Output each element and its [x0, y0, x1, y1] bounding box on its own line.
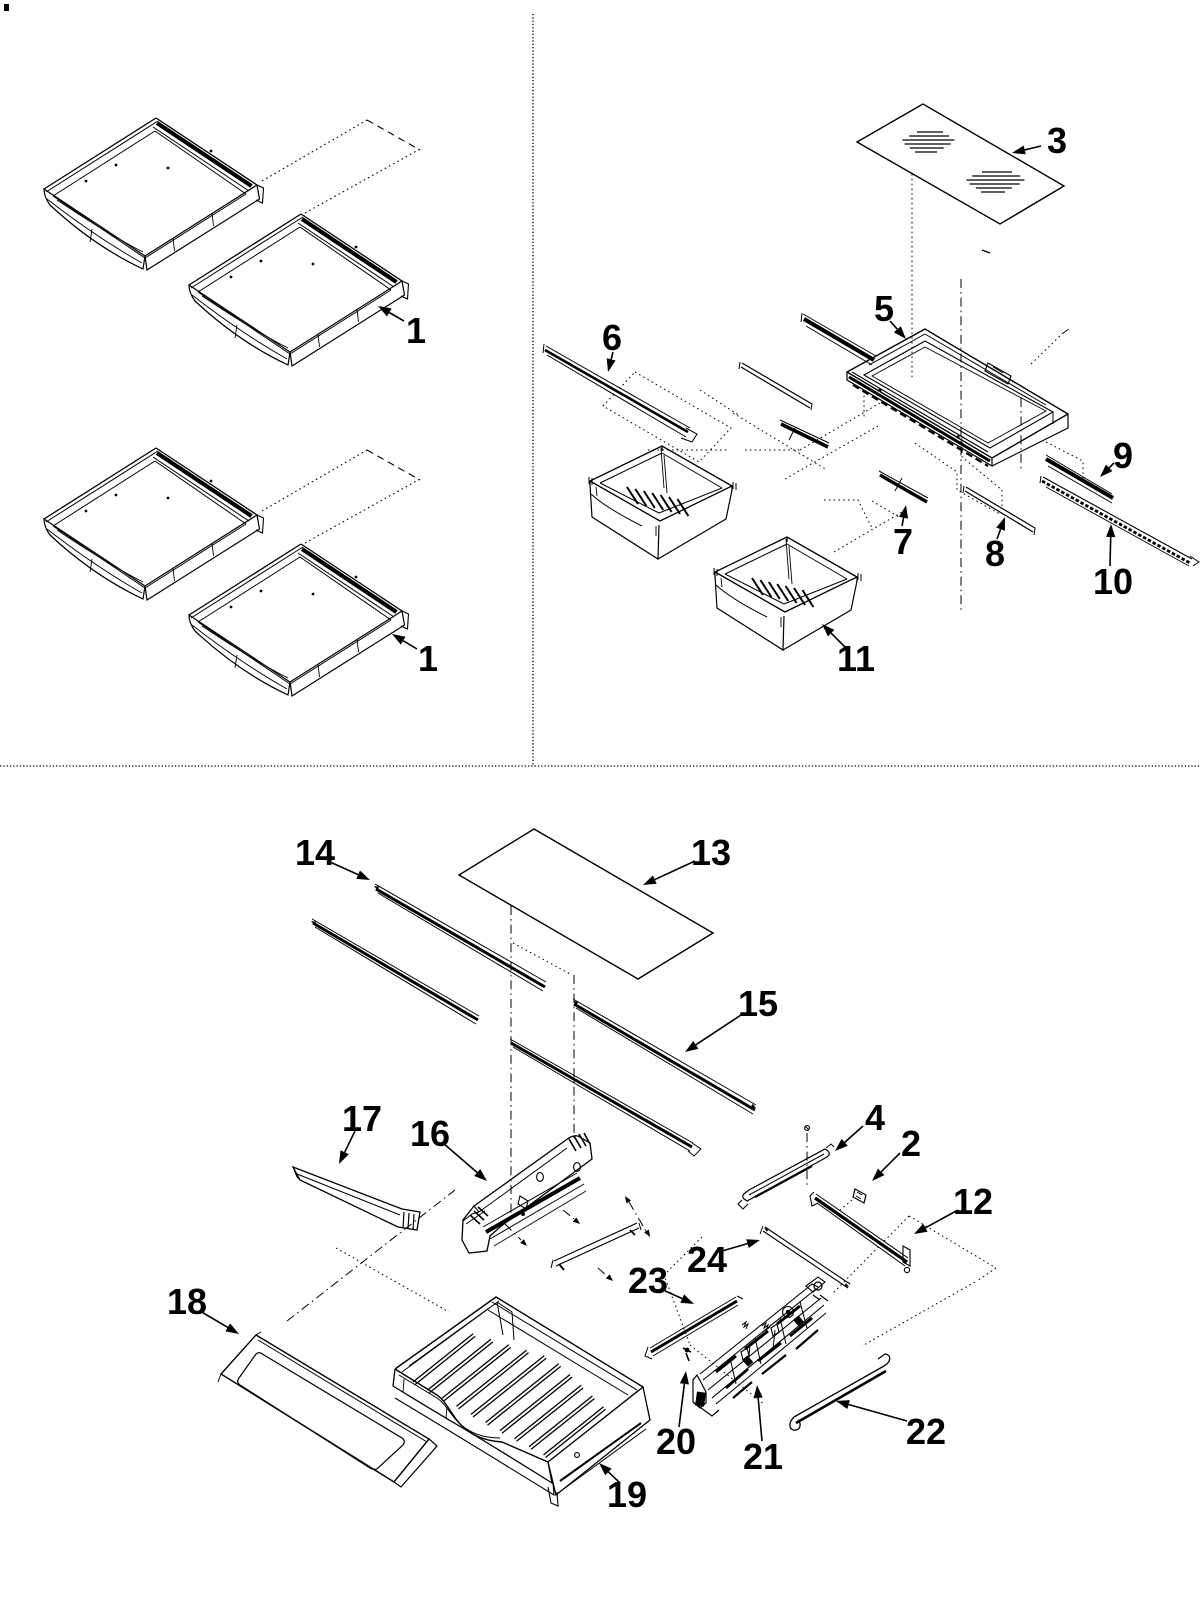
svg-text:19: 19 [607, 1474, 647, 1515]
svg-text:11: 11 [837, 638, 875, 679]
svg-text:12: 12 [953, 1181, 993, 1222]
svg-text:16: 16 [410, 1113, 450, 1154]
svg-text:22: 22 [906, 1411, 946, 1452]
svg-text:9: 9 [1113, 435, 1133, 476]
svg-text:20: 20 [656, 1421, 696, 1462]
svg-text:7: 7 [893, 521, 913, 562]
svg-text:21: 21 [743, 1436, 783, 1477]
svg-text:18: 18 [167, 1281, 207, 1322]
svg-text:1: 1 [418, 638, 438, 679]
svg-text:2: 2 [901, 1123, 921, 1164]
svg-text:24: 24 [687, 1239, 727, 1280]
svg-text:10: 10 [1093, 561, 1133, 602]
svg-text:13: 13 [691, 832, 731, 873]
svg-text:4: 4 [865, 1097, 885, 1138]
svg-text:1: 1 [406, 310, 426, 351]
svg-text:3: 3 [1047, 120, 1067, 161]
svg-text:14: 14 [295, 832, 335, 873]
svg-text:6: 6 [602, 317, 622, 358]
svg-text:15: 15 [738, 983, 778, 1024]
svg-text:8: 8 [985, 533, 1005, 574]
svg-text:17: 17 [342, 1098, 382, 1139]
svg-text:5: 5 [874, 288, 894, 329]
svg-text:23: 23 [628, 1260, 668, 1301]
